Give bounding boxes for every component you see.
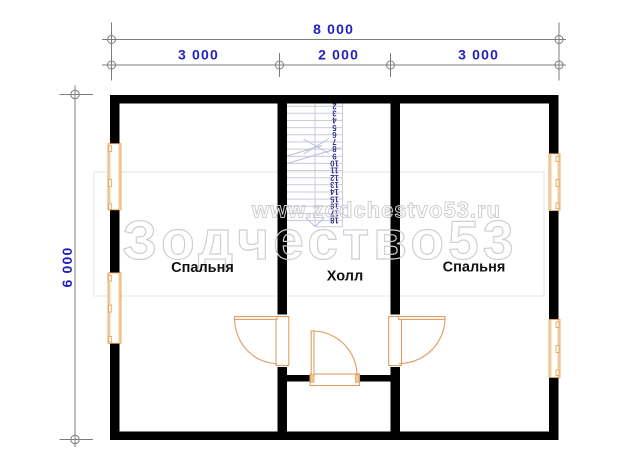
svg-text:3 000: 3 000 <box>458 47 499 63</box>
svg-text:3 000: 3 000 <box>178 47 219 63</box>
svg-text:Спальня: Спальня <box>443 260 506 276</box>
svg-text:8 000: 8 000 <box>313 21 354 37</box>
svg-text:2 000: 2 000 <box>318 47 359 63</box>
svg-text:6 000: 6 000 <box>59 246 75 287</box>
svg-text:Холл: Холл <box>327 269 363 285</box>
svg-text:Спальня: Спальня <box>171 260 234 276</box>
